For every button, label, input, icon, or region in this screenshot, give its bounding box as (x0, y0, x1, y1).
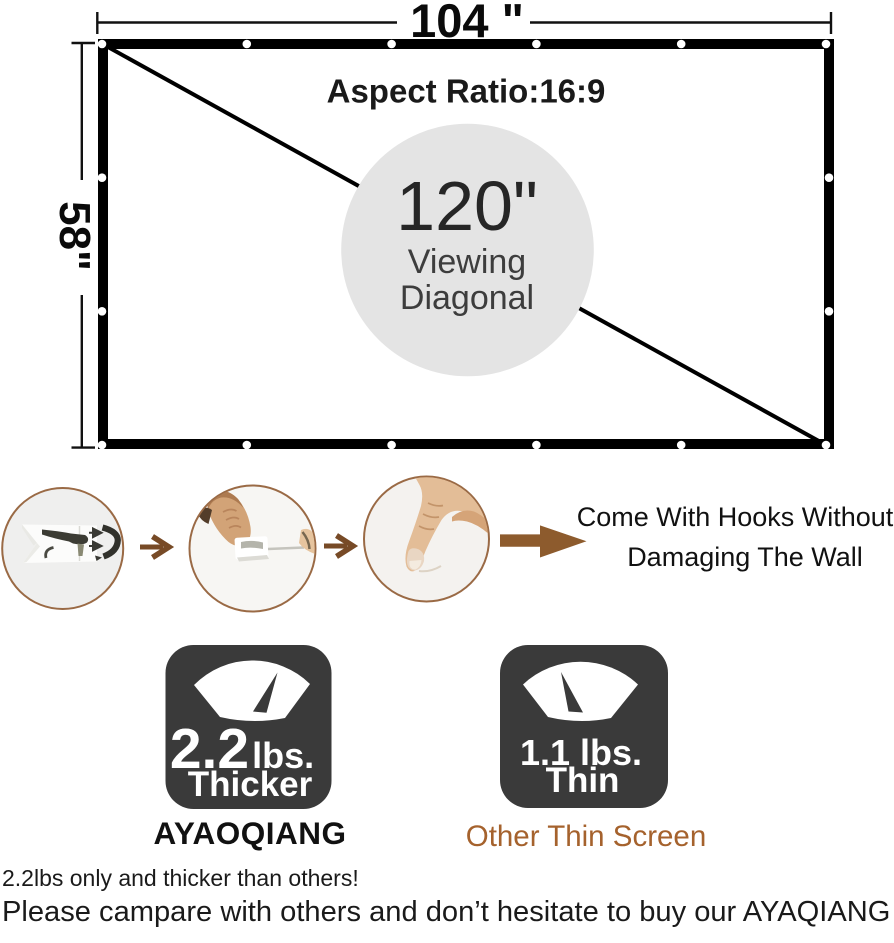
svg-text:2.2lbs only and thicker than o: 2.2lbs only and thicker than others! (2, 865, 359, 891)
svg-text:Other Thin Screen: Other Thin Screen (466, 820, 707, 853)
svg-text:AYAOQIANG: AYAOQIANG (154, 815, 347, 851)
svg-text:Diagonal: Diagonal (400, 279, 534, 317)
svg-text:Damaging The Wall: Damaging The Wall (627, 542, 863, 572)
svg-text:Please campare with others and: Please campare with others and don’t hes… (2, 896, 890, 928)
svg-text:Come With Hooks Without: Come With Hooks Without (577, 502, 894, 532)
svg-text:Thicker: Thicker (188, 765, 313, 804)
svg-text:Aspect Ratio:16:9: Aspect Ratio:16:9 (327, 73, 606, 110)
svg-text:Thin: Thin (546, 761, 620, 800)
svg-text:120": 120" (396, 167, 538, 245)
svg-text:Viewing: Viewing (408, 243, 526, 281)
svg-text:58": 58" (50, 201, 99, 271)
